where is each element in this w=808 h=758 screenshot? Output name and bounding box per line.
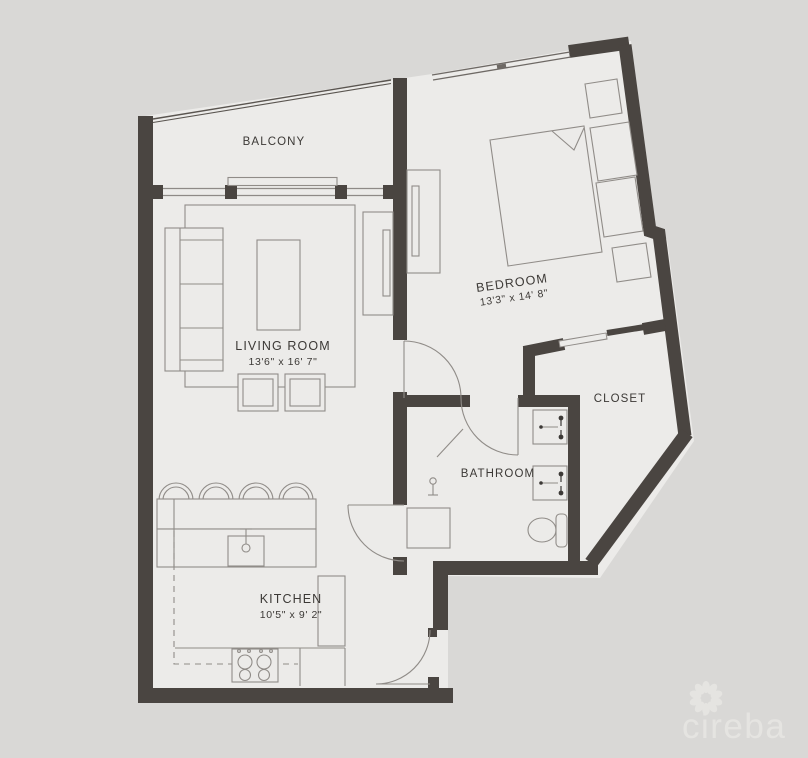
dims-kitchen: 10'5" x 9' 2" <box>260 609 322 621</box>
coffee-table <box>257 240 300 330</box>
nightstand <box>585 79 622 118</box>
balcony-slider-door <box>228 178 337 186</box>
label-kitchen: KITCHEN <box>260 592 323 606</box>
wall-divider <box>393 78 407 340</box>
label-balcony: BALCONY <box>243 136 306 148</box>
label-living-room: LIVING ROOM <box>235 339 330 353</box>
bench <box>612 243 651 282</box>
kitchen-island <box>157 499 316 567</box>
floor-plan-canvas: BALCONY LIVING ROOM 13'6" x 16' 7" BEDRO… <box>0 0 808 758</box>
dims-living-room: 13'6" x 16' 7" <box>249 356 318 368</box>
tv-console <box>363 212 393 315</box>
label-closet: CLOSET <box>594 393 647 405</box>
cireba-watermark: cireba <box>682 681 786 746</box>
dresser-right-2 <box>596 177 643 237</box>
bedroom-dresser-tv <box>407 170 440 273</box>
wall-bottom <box>138 688 453 703</box>
sofa <box>165 228 223 371</box>
wall-left <box>138 116 153 697</box>
floor-plan: BALCONY LIVING ROOM 13'6" x 16' 7" BEDRO… <box>0 0 808 758</box>
stove <box>232 649 278 682</box>
dresser-right-1 <box>590 122 637 181</box>
cireba-logo-text: cireba <box>682 707 786 746</box>
bed <box>490 126 602 266</box>
label-bathroom: BATHROOM <box>461 468 535 480</box>
